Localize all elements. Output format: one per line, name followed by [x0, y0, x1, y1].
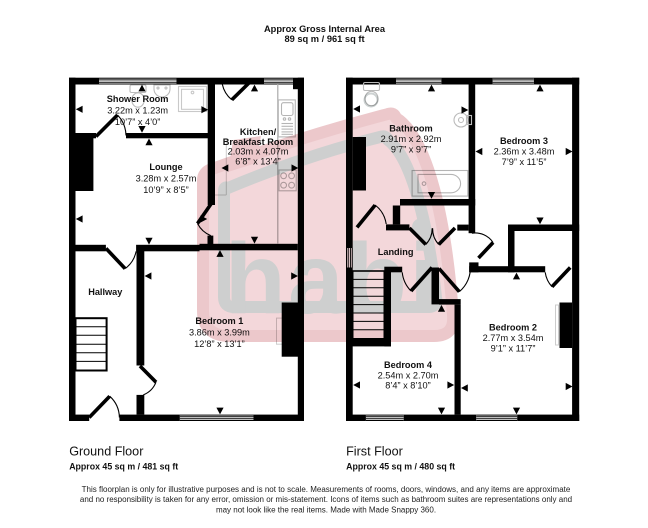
svg-text:9’1” x 11’7”: 9’1” x 11’7” [491, 344, 536, 354]
svg-text:Ground Floor: Ground Floor [69, 445, 143, 459]
svg-text:This floorplan is only for ill: This floorplan is only for illustrative … [82, 485, 571, 494]
svg-text:Bedroom 4: Bedroom 4 [384, 360, 433, 370]
svg-text:8’4” x 8’10”: 8’4” x 8’10” [385, 381, 430, 391]
svg-text:Approx 45 sq m / 480 sq ft: Approx 45 sq m / 480 sq ft [346, 461, 455, 471]
svg-text:89 sq m / 961 sq ft: 89 sq m / 961 sq ft [284, 34, 364, 44]
svg-text:Shower Room: Shower Room [107, 94, 169, 104]
svg-text:2.54m x 2.70m: 2.54m x 2.70m [378, 370, 439, 380]
svg-text:and no responsibility is taken: and no responsibility is taken for any e… [80, 495, 572, 504]
svg-text:3.22m x 1.23m: 3.22m x 1.23m [107, 106, 168, 116]
svg-text:Kitchen/: Kitchen/ [240, 127, 277, 137]
svg-text:10’9” x 8’5”: 10’9” x 8’5” [143, 185, 188, 195]
svg-text:2.36m x 3.48m: 2.36m x 3.48m [494, 147, 555, 157]
svg-text:First Floor: First Floor [346, 445, 403, 459]
svg-text:3.28m x 2.57m: 3.28m x 2.57m [136, 174, 197, 184]
svg-text:10’7” x 4’0”: 10’7” x 4’0” [115, 117, 160, 127]
svg-text:Bedroom 3: Bedroom 3 [500, 136, 548, 146]
svg-text:Bedroom 2: Bedroom 2 [489, 323, 537, 333]
svg-text:Hallway: Hallway [88, 287, 123, 297]
svg-text:Lounge: Lounge [149, 162, 182, 172]
svg-text:habi: habi [225, 223, 440, 335]
svg-text:Approx 45 sq m / 481 sq ft: Approx 45 sq m / 481 sq ft [69, 461, 178, 471]
svg-text:7’9” x 11’5”: 7’9” x 11’5” [502, 157, 547, 167]
svg-text:2.77m x 3.54m: 2.77m x 3.54m [483, 333, 544, 343]
svg-text:Approx Gross Internal Area: Approx Gross Internal Area [264, 24, 386, 34]
svg-text:may not look like the real ite: may not look like the real items. Made w… [216, 505, 436, 514]
